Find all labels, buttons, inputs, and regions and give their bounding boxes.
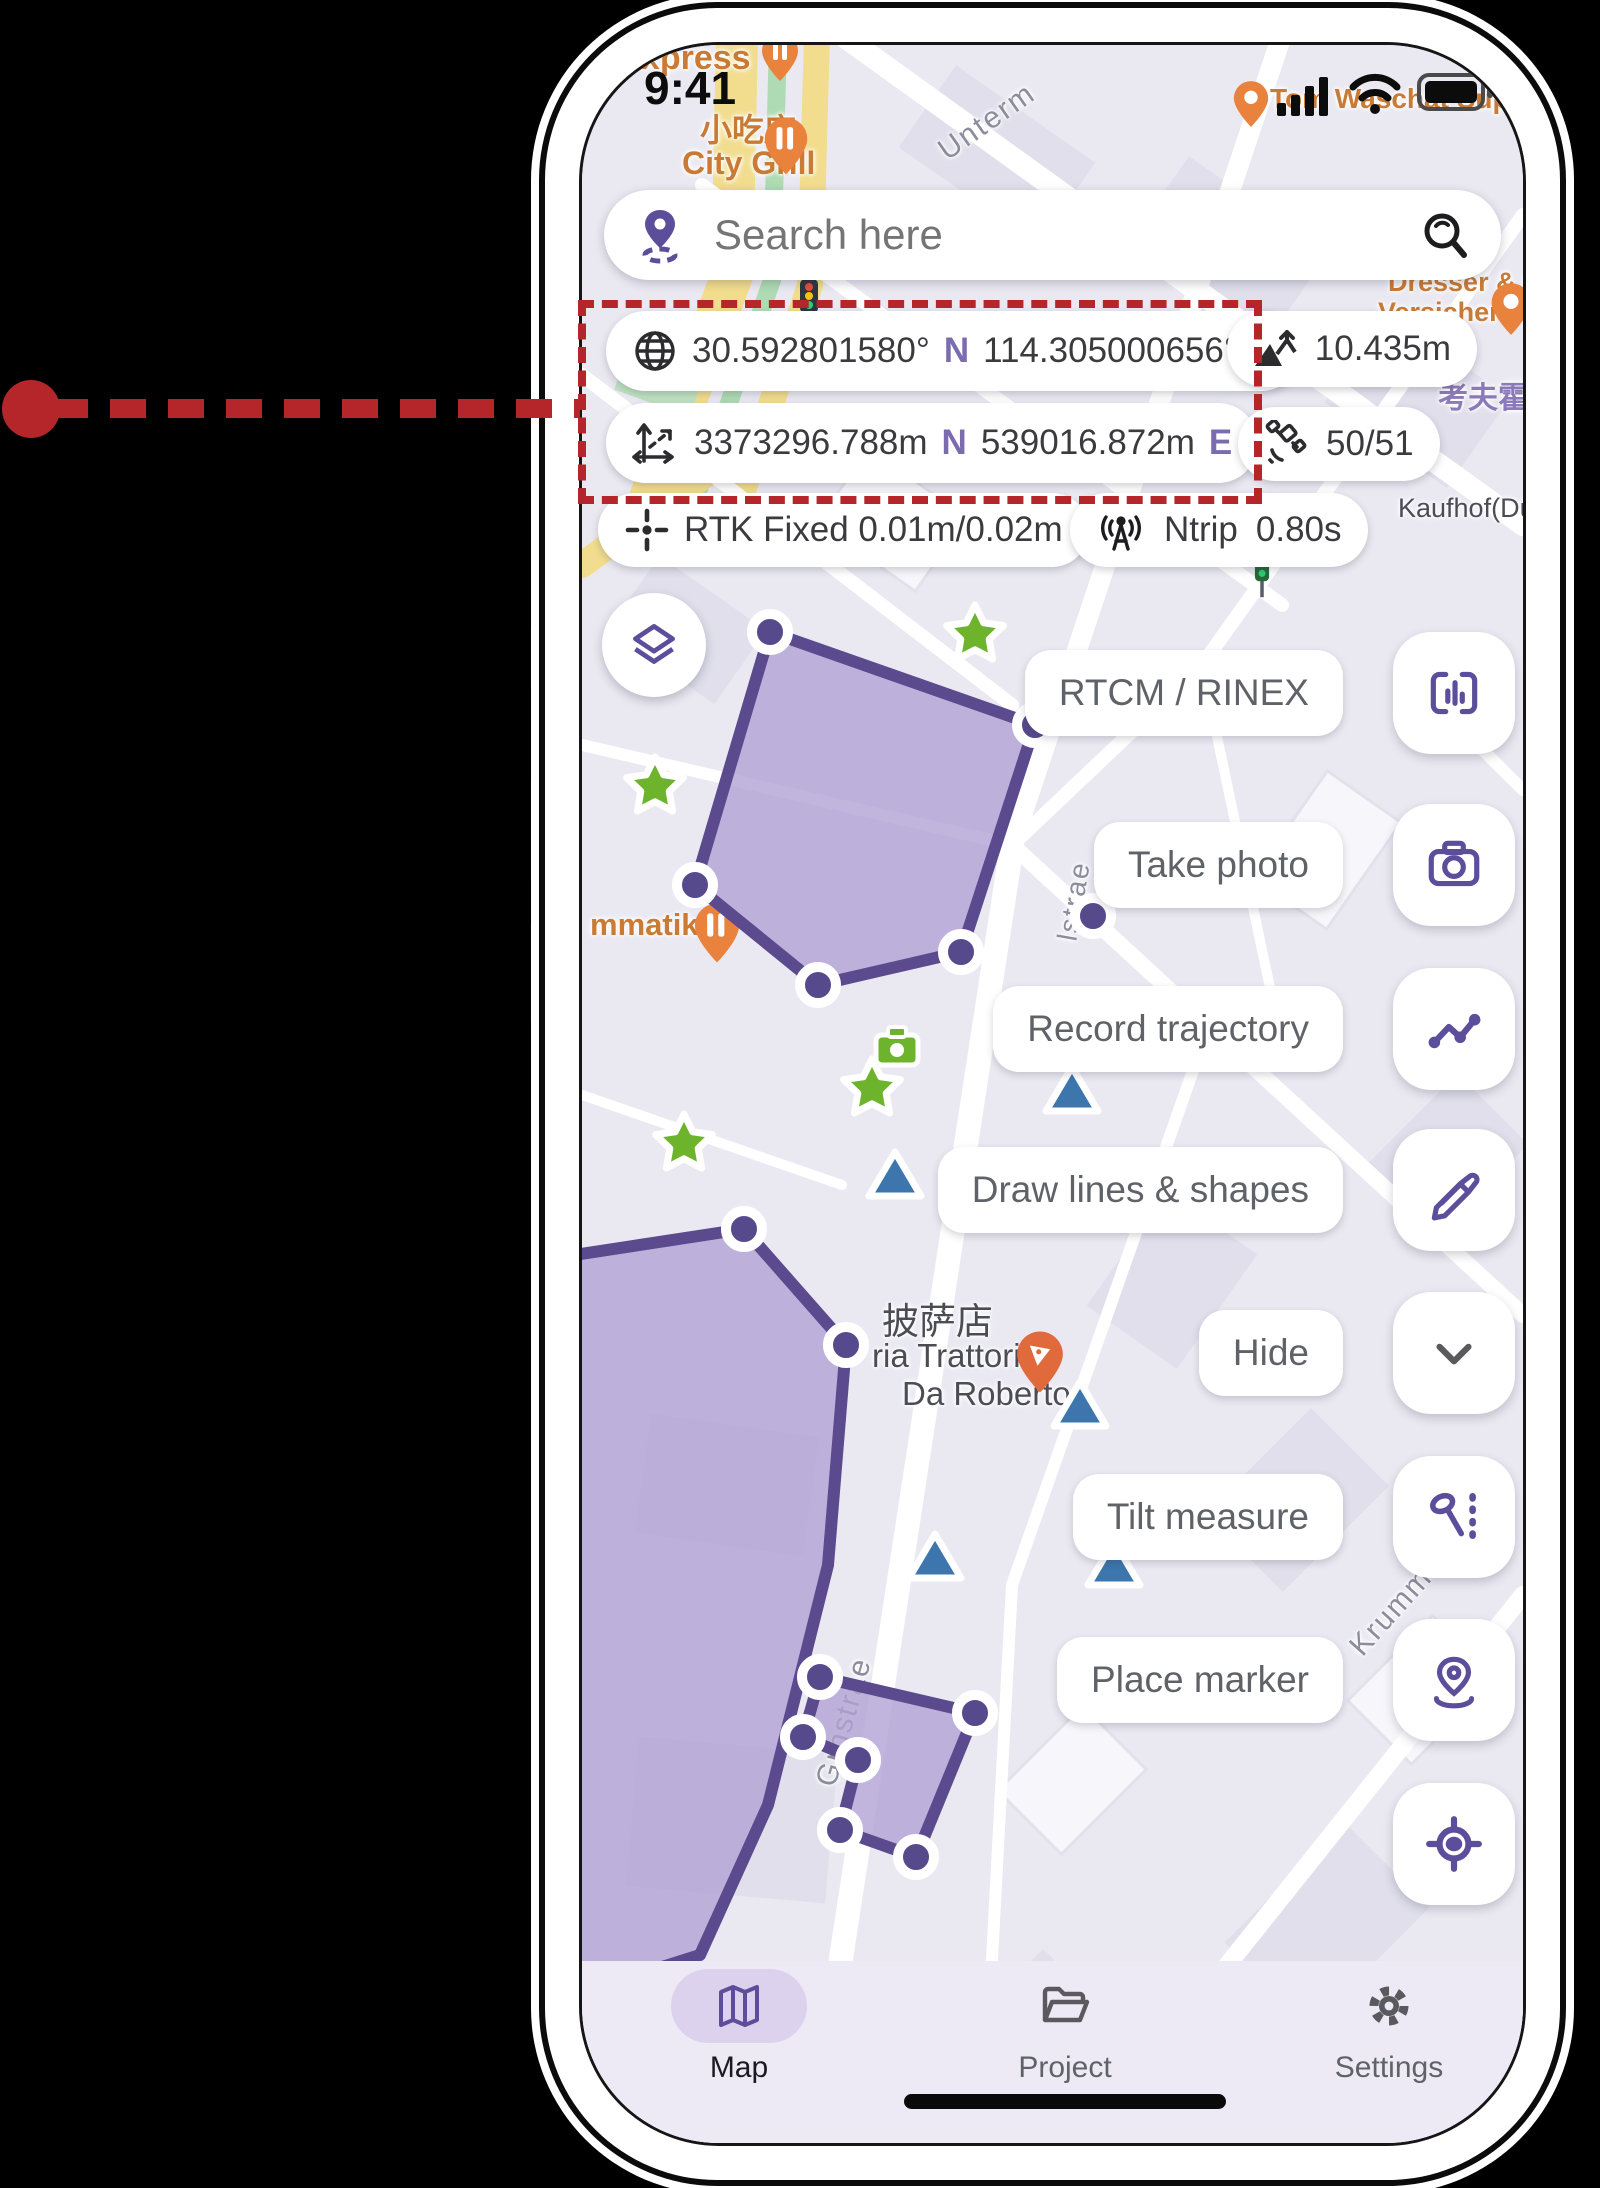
- draw-lines-shapes-text: Draw lines & shapes: [972, 1169, 1309, 1211]
- ntrip-label: Ntrip: [1164, 510, 1238, 550]
- annotation-highlight-rect: [578, 300, 1262, 504]
- take-photo-button[interactable]: [1393, 804, 1515, 926]
- search-bar[interactable]: [604, 190, 1501, 280]
- trajectory-icon: [1423, 998, 1485, 1060]
- survey-polygon: [582, 1229, 846, 2005]
- triangle-marker: [1054, 1382, 1106, 1426]
- tilt-measure-text: Tilt measure: [1107, 1496, 1309, 1538]
- rtk-crosshair-icon: [624, 507, 670, 553]
- screenshot-stage: express 小吃店 City Grill Unterm Tom Wascha…: [0, 0, 1600, 2188]
- nav-settings-label: Settings: [1335, 2051, 1443, 2085]
- take-photo-text: Take photo: [1128, 844, 1309, 886]
- vertex-dot: [943, 934, 979, 970]
- vertex-dot: [785, 1719, 821, 1755]
- vertex-dot: [802, 1659, 838, 1695]
- nav-tab-project[interactable]: Project: [970, 1969, 1160, 2085]
- hide-panel-button[interactable]: [1393, 1292, 1515, 1414]
- layers-icon: [623, 614, 685, 676]
- vertex-dot: [957, 1695, 993, 1731]
- take-photo-label[interactable]: Take photo: [1094, 822, 1343, 908]
- chevron-down-icon: [1423, 1322, 1485, 1384]
- battery-icon: [1417, 71, 1495, 113]
- nav-settings-pill: [1321, 1969, 1457, 2043]
- camera-icon: [1422, 834, 1486, 896]
- vertex-dot: [828, 1327, 864, 1363]
- search-icon[interactable]: [1419, 209, 1471, 261]
- nav-tab-settings[interactable]: Settings: [1294, 1969, 1484, 2085]
- record-trajectory-text: Record trajectory: [1027, 1008, 1309, 1050]
- home-indicator[interactable]: [904, 2094, 1226, 2109]
- search-input[interactable]: [712, 210, 1393, 260]
- vertex-dot: [677, 867, 713, 903]
- vertex-dot: [822, 1812, 858, 1848]
- draw-lines-shapes-label[interactable]: Draw lines & shapes: [938, 1147, 1343, 1233]
- gear-icon: [1363, 1980, 1415, 2032]
- triangle-marker: [909, 1534, 961, 1578]
- satellites-count: 50/51: [1326, 424, 1414, 464]
- triangle-marker: [1046, 1067, 1098, 1111]
- place-marker-text: Place marker: [1091, 1659, 1309, 1701]
- annotation-dashed-line: [52, 399, 580, 418]
- nav-project-pill: [997, 1969, 1133, 2043]
- locate-button[interactable]: [1393, 1783, 1515, 1905]
- tilt-measure-button[interactable]: [1393, 1456, 1515, 1578]
- tilt-measure-label[interactable]: Tilt measure: [1073, 1474, 1343, 1560]
- vertex-dot: [726, 1211, 762, 1247]
- ntrip-status-pill[interactable]: Ntrip 0.80s: [1070, 493, 1368, 567]
- nav-map-highlight: [671, 1969, 807, 2043]
- star-marker: [947, 605, 1004, 659]
- folder-icon: [1039, 1980, 1091, 2032]
- vertex-dot: [840, 1742, 876, 1778]
- star-marker: [656, 1114, 713, 1168]
- pencil-icon: [1423, 1159, 1485, 1221]
- data-log-icon: [1423, 662, 1485, 724]
- satellites-pill[interactable]: 50/51: [1238, 407, 1440, 481]
- map-icon: [713, 1980, 765, 2032]
- vertex-dot: [752, 614, 788, 650]
- nav-project-label: Project: [1018, 2051, 1111, 2085]
- draw-lines-shapes-button[interactable]: [1393, 1129, 1515, 1251]
- rtcm-rinex-button[interactable]: [1393, 632, 1515, 754]
- vertex-dot: [800, 967, 836, 1003]
- rtk-status-text: RTK Fixed 0.01m/0.02m: [684, 510, 1063, 550]
- place-marker-icon: [1423, 1649, 1485, 1711]
- wifi-icon: [1349, 73, 1401, 115]
- satellite-icon: [1264, 420, 1312, 468]
- locate-icon: [1423, 1813, 1485, 1875]
- layers-button[interactable]: [602, 593, 706, 697]
- survey-polygon: [695, 632, 1035, 985]
- record-trajectory-label[interactable]: Record trajectory: [993, 986, 1343, 1072]
- rtcm-rinex-label[interactable]: RTCM / RINEX: [1025, 650, 1343, 736]
- rtk-status-pill[interactable]: RTK Fixed 0.01m/0.02m: [598, 493, 1089, 567]
- hide-text: Hide: [1233, 1332, 1309, 1374]
- star-camera-badge: [876, 1027, 918, 1065]
- tilt-measure-icon: [1423, 1486, 1485, 1548]
- nav-map-label: Map: [710, 2051, 768, 2085]
- signal-icon: [1277, 75, 1333, 117]
- nav-tab-map[interactable]: Map: [644, 1969, 834, 2085]
- record-trajectory-button[interactable]: [1393, 968, 1515, 1090]
- status-bar: 9:41: [582, 45, 1523, 145]
- altitude-pill[interactable]: 10.435m: [1227, 311, 1477, 387]
- place-marker-button[interactable]: [1393, 1619, 1515, 1741]
- place-marker-label[interactable]: Place marker: [1057, 1637, 1343, 1723]
- antenna-icon: [1096, 507, 1146, 553]
- hide-label[interactable]: Hide: [1199, 1310, 1343, 1396]
- triangle-marker: [869, 1152, 921, 1196]
- vertex-dot: [898, 1839, 934, 1875]
- star-marker: [627, 757, 684, 811]
- bottom-navigation: Map Project: [582, 1961, 1523, 2143]
- clock: 9:41: [644, 61, 736, 115]
- rtcm-rinex-text: RTCM / RINEX: [1059, 672, 1309, 714]
- location-pin-icon: [634, 206, 686, 264]
- altitude-value: 10.435m: [1315, 329, 1451, 369]
- ntrip-delay: 0.80s: [1256, 510, 1342, 550]
